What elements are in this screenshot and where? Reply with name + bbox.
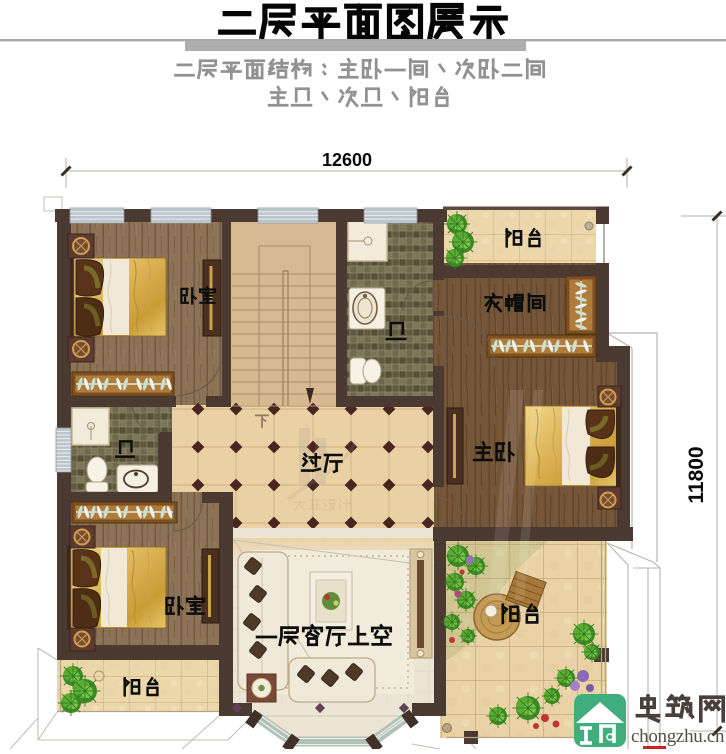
svg-text:11800: 11800 xyxy=(685,446,708,503)
svg-text:12600: 12600 xyxy=(322,150,372,170)
svg-text:chongzhu.cn: chongzhu.cn xyxy=(631,726,725,747)
